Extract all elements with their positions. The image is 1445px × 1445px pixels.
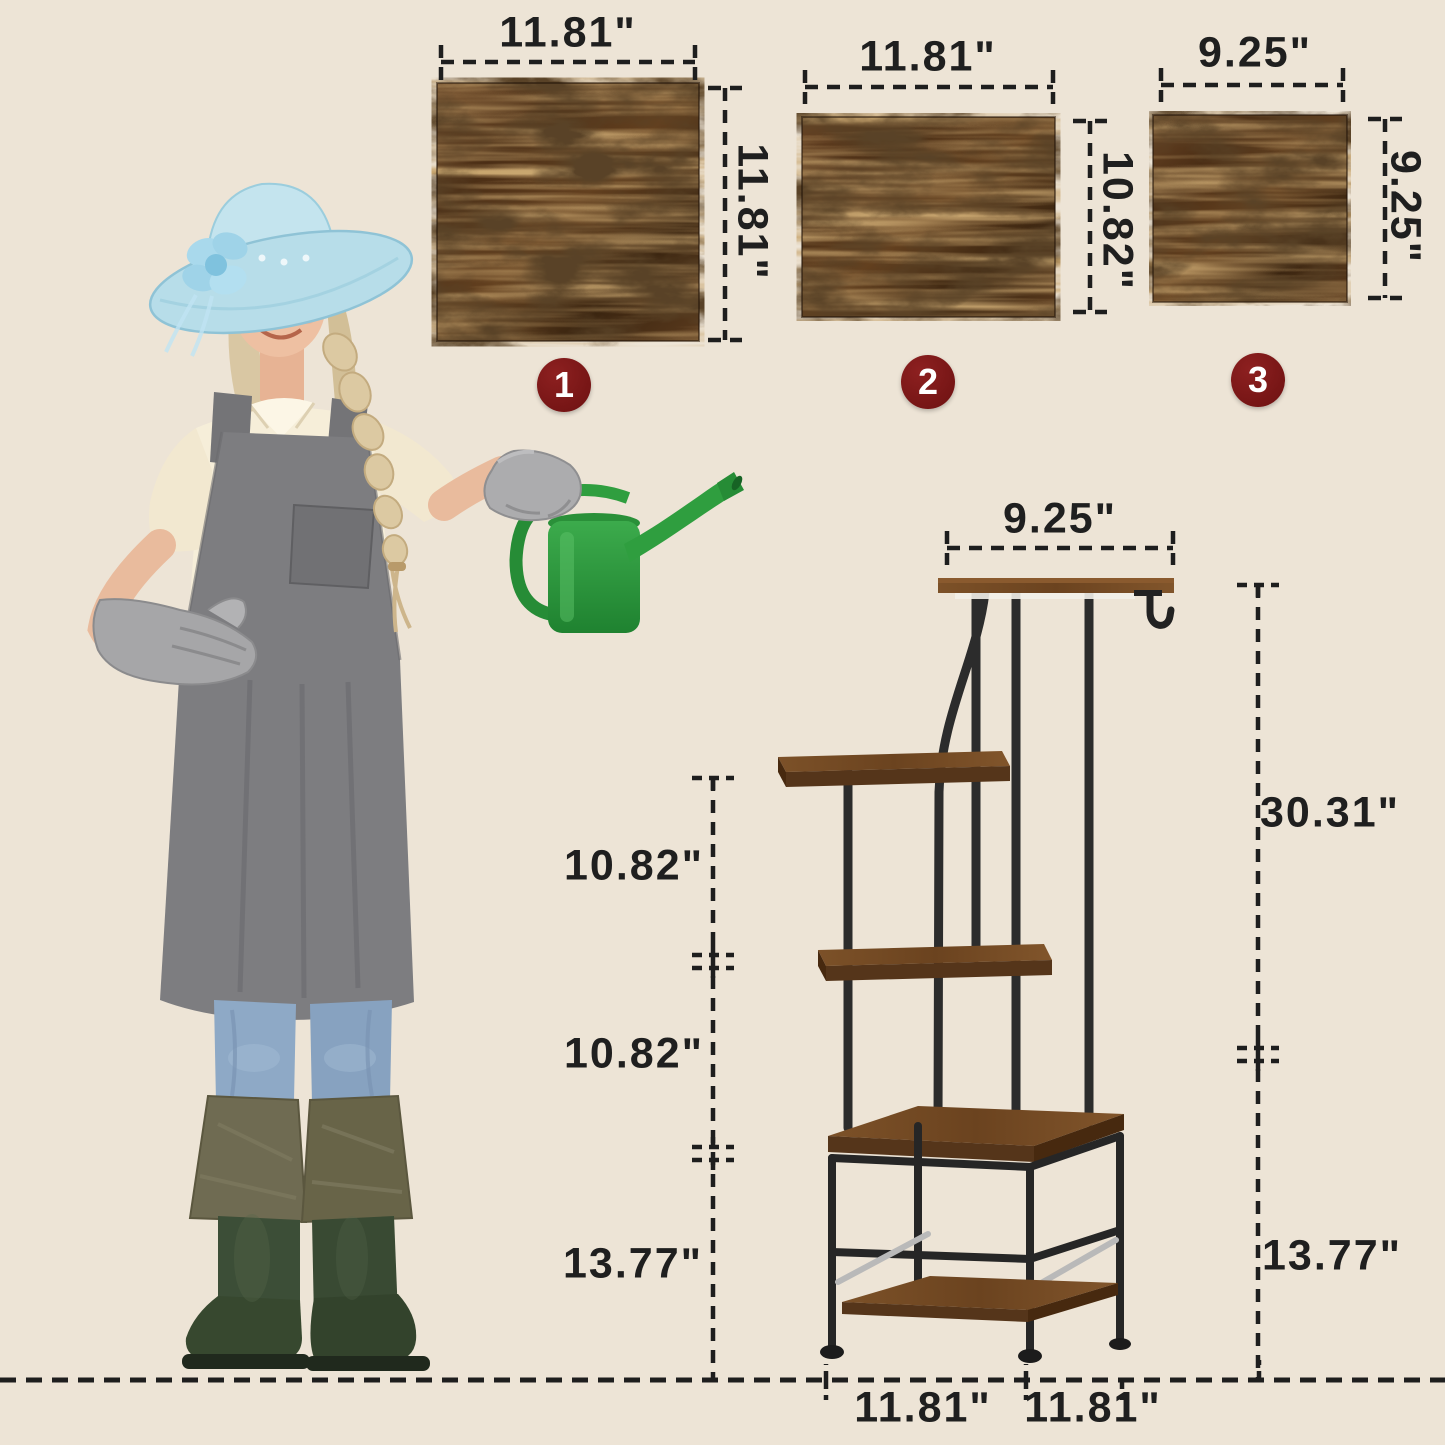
panel3-width-label: 9.25" [1198,29,1312,78]
stand-feet [820,1338,1131,1363]
stand-right-dim-1-label: 30.31" [1260,789,1400,838]
stand-shelf-3 [818,944,1052,981]
boot-right [306,1216,430,1371]
wood-panel-1 [437,83,699,341]
stand-posts [848,592,1089,1128]
stand-hook [1134,590,1171,625]
stand-bottom-shelf [842,1276,1118,1322]
stand-shelf-2 [778,751,1010,787]
stand-right-dim-2-label: 13.77" [1262,1232,1402,1281]
panel1-height-label: 11.81" [728,143,777,281]
panel1-number-badge: 1 [537,358,591,412]
garden-glove-right [484,451,580,521]
boot-left [182,1214,310,1369]
gardener-figure [93,184,744,1371]
infographic-scene [0,0,1445,1445]
boot-gaiters [190,1096,412,1222]
stand-left-dim-3-label: 13.77" [563,1240,703,1289]
stand-base-width-label: 11.81" [854,1384,992,1433]
stand-top-width-label: 9.25" [1003,495,1117,544]
stand-left-dim-1-label: 10.82" [564,842,704,891]
stand-base-depth-label: 11.81" [1024,1384,1162,1433]
plant-stand [778,578,1174,1363]
panel1-width-label: 11.81" [499,9,637,58]
apron-pocket [290,505,374,588]
wood-panel-3 [1153,115,1347,302]
garden-glove-left [93,598,256,684]
panel2-width-label: 11.81" [859,33,997,82]
panel2-height-label: 10.82" [1093,151,1142,291]
wood-panel-2 [802,117,1055,317]
panel3-number-badge: 3 [1231,353,1285,407]
panel3-height-label: 9.25" [1381,150,1430,264]
product-dimension-infographic: 11.81" 11.81" 11.81" 10.82" 9.25" 9.25" … [0,0,1445,1445]
panel2-number-badge: 2 [901,355,955,409]
stand-left-dim-2-label: 10.82" [564,1030,704,1079]
rubber-boots [182,1214,430,1371]
